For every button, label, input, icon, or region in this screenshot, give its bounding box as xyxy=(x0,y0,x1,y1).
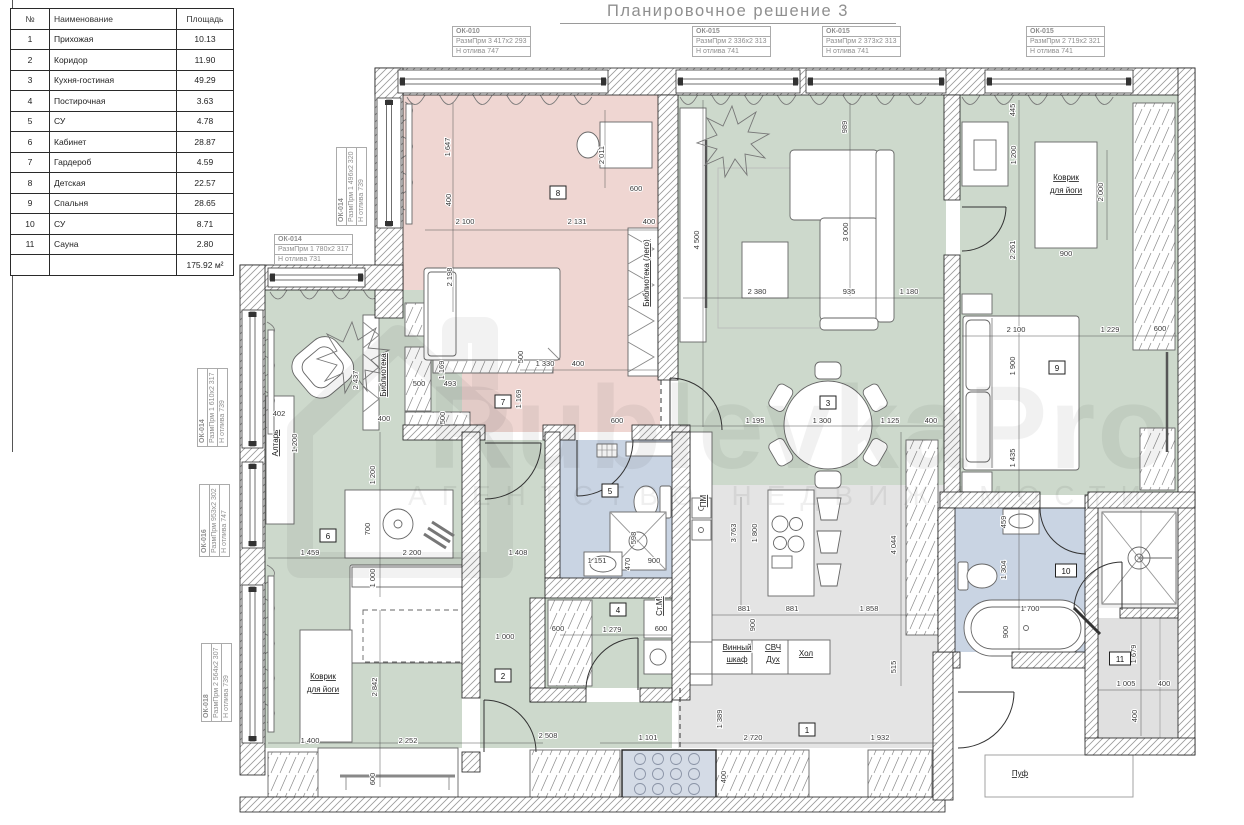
shoe-cabinet xyxy=(622,750,716,798)
window-callout-id: ОК-015 xyxy=(1027,27,1104,37)
wall xyxy=(944,95,960,200)
window-callout-size: РазмПрм 1 496х2 320 xyxy=(347,149,357,226)
dimension-label: 4 044 xyxy=(889,536,898,555)
window-callout-size: РазмПрм 3 417х2 293 xyxy=(453,37,530,47)
plan-label: СВЧ xyxy=(765,643,781,652)
window-glyph xyxy=(806,70,946,93)
window-callout: ОК-014РазмПрм 1 496х2 320Н отлива 739 xyxy=(336,148,367,227)
wall xyxy=(938,508,955,652)
window-callout: ОК-014РазмПрм 1 610х2 317Н отлива 739 xyxy=(197,369,228,448)
dimension-label: 1 101 xyxy=(639,733,658,742)
room-badge-number: 11 xyxy=(1116,655,1125,664)
window-callout-size: РазмПрм 953х2 302 xyxy=(210,485,220,556)
window-callout: ОК-015РазмПрм 2 719х2 321Н отлива 741 xyxy=(1026,26,1105,57)
plan-label: Винный xyxy=(723,643,752,652)
dimension-label: 400 xyxy=(1158,679,1171,688)
dimension-label: 2 200 xyxy=(403,548,422,557)
dimension-label: 1 330 xyxy=(536,359,555,368)
plan-label: для йоги xyxy=(1050,186,1082,195)
plan-label: Коврик xyxy=(310,672,336,681)
room-badge-number: 7 xyxy=(501,398,506,407)
window-glyph xyxy=(676,70,800,93)
dimension-label: 400 xyxy=(378,414,391,423)
dimension-label: 2 100 xyxy=(1007,325,1026,334)
window-callout-drip: Н отлива 741 xyxy=(693,47,770,56)
dimension-label: 400 xyxy=(719,771,728,784)
dimension-label: 459 xyxy=(999,516,1008,529)
dimension-label: 2 261 xyxy=(1008,241,1017,260)
dimension-label: 4 500 xyxy=(692,231,701,250)
room-badge-number: 4 xyxy=(616,606,621,615)
dresser-tv xyxy=(962,122,1008,186)
window-callout-id: ОК-014 xyxy=(275,235,352,245)
dimension-label: 500 xyxy=(413,379,426,388)
dimension-label: 1 300 xyxy=(813,416,832,425)
dimension-label: 881 xyxy=(738,604,751,613)
dimension-label: 989 xyxy=(840,121,849,134)
plan-label: Пуф xyxy=(1012,769,1029,778)
wall xyxy=(640,688,672,702)
wall xyxy=(462,752,480,772)
dimension-label: 400 xyxy=(572,359,585,368)
dimension-label: 1 195 xyxy=(746,416,765,425)
window-callout-drip: Н отлива 747 xyxy=(453,47,530,56)
dimension-label: 400 xyxy=(444,194,453,207)
window-glyph xyxy=(985,70,1133,93)
window-callout-id: ОК-014 xyxy=(337,149,347,226)
dimension-label: 3 000 xyxy=(841,223,850,242)
window-callout-id: ОК-018 xyxy=(202,645,212,722)
window-callout-drip: Н отлива 739 xyxy=(222,645,231,722)
dimension-label: 1 125 xyxy=(881,416,900,425)
window-callout: ОК-010РазмПрм 3 417х2 293Н отлива 747 xyxy=(452,26,531,57)
plan-label: Библиотека (лего) xyxy=(642,239,651,307)
tv-unit-living xyxy=(680,108,706,342)
wall xyxy=(933,652,953,800)
shower-tray xyxy=(1102,512,1176,604)
watermark-subtext: АГЕНТСТВО НЕДВИЖИМОСТИ xyxy=(408,480,1156,511)
room-badge-number: 10 xyxy=(1062,567,1071,576)
dimension-label: 700 xyxy=(363,523,372,536)
wall xyxy=(240,797,945,812)
window-callout-drip: Н отлива 741 xyxy=(823,47,900,56)
dimension-label: 881 xyxy=(786,604,799,613)
dimension-label: 1 180 xyxy=(900,287,919,296)
dimension-label: 1 229 xyxy=(1101,325,1120,334)
dimension-label: 1 000 xyxy=(496,632,515,641)
wall xyxy=(1178,68,1195,755)
dimension-label: 2 380 xyxy=(748,287,767,296)
plan-label: Алтарь xyxy=(271,430,280,457)
window-callout-drip: Н отлива 731 xyxy=(275,255,352,264)
dimension-label: 935 xyxy=(843,287,856,296)
window-glyph xyxy=(242,585,263,743)
room-badge-number: 5 xyxy=(608,487,613,496)
dimension-label: 600 xyxy=(1154,324,1167,333)
dimension-label: 1 005 xyxy=(1117,679,1136,688)
dimension-label: 1 858 xyxy=(860,604,879,613)
window-callout: ОК-018РазмПрм 2 564х2 307Н отлива 739 xyxy=(201,644,232,723)
dimension-label: 1 200 xyxy=(1009,146,1018,165)
wall xyxy=(1085,495,1098,740)
dimension-label: 2 437 xyxy=(351,371,360,390)
dimension-label: 900 xyxy=(748,619,757,632)
window-glyph xyxy=(377,98,401,228)
dimension-label: 1 169 xyxy=(437,361,446,380)
room-badge-number: 6 xyxy=(326,532,331,541)
dimension-label: 515 xyxy=(889,661,898,674)
dimension-label: 400 xyxy=(643,217,656,226)
dimension-label: 400 xyxy=(1130,710,1139,723)
dimension-label: 2 011 xyxy=(597,146,606,164)
dimension-label: 1 400 xyxy=(301,736,320,745)
dimension-label: 500 xyxy=(516,351,525,364)
dimension-label: 1 435 xyxy=(1008,449,1017,468)
dimension-label: 1 932 xyxy=(871,733,890,742)
dimension-label: 2 100 xyxy=(456,217,475,226)
window-callout: ОК-015РазмПрм 2 373х2 313Н отлива 741 xyxy=(822,26,901,57)
window-callout-drip: Н отлива 739 xyxy=(218,370,227,447)
dimension-label: 402 xyxy=(273,409,286,418)
window-glyph xyxy=(242,310,263,448)
dimension-label: 470 xyxy=(623,558,632,571)
dimension-label: 1 304 xyxy=(999,561,1008,580)
window-callout-drip: Н отлива 739 xyxy=(357,149,366,226)
window-callout-id: ОК-015 xyxy=(823,27,900,37)
window-callout: ОК-016РазмПрм 953х2 302Н отлива 747 xyxy=(199,484,230,557)
window-callout: ОК-014РазмПрм 1 780х2 317Н отлива 731 xyxy=(274,234,353,265)
window-callout-id: ОК-015 xyxy=(693,27,770,37)
dimension-label: 1 647 xyxy=(443,138,452,157)
window-callout: ОК-015РазмПрм 2 336х2 313Н отлива 741 xyxy=(692,26,771,57)
watermark-text: RublevkaPro xyxy=(428,362,1171,494)
room-badge-number: 2 xyxy=(501,672,506,681)
window-callout-size: РазмПрм 2 373х2 313 xyxy=(823,37,900,47)
window-callout-drip: Н отлива 747 xyxy=(220,485,229,556)
window-callout-drip: Н отлива 741 xyxy=(1027,47,1104,56)
floor-plan: RublevkaPro АГЕНТСТВО НЕДВИЖИМОСТИ 1 647… xyxy=(0,0,1244,825)
dimension-label: 600 xyxy=(630,184,643,193)
wall xyxy=(530,598,545,702)
window-callout-size: РазмПрм 1 780х2 317 xyxy=(275,245,352,255)
dimension-label: 1 200 xyxy=(290,434,299,453)
dimension-label: 3 763 xyxy=(729,524,738,543)
dimension-label: 598 xyxy=(629,532,638,545)
dimension-label: 2 842 xyxy=(370,678,379,697)
plan-label: Ст.М. xyxy=(655,596,664,616)
console-table xyxy=(318,748,458,798)
dimension-label: 2 720 xyxy=(744,733,763,742)
dimension-label: 2 508 xyxy=(539,731,558,740)
plan-label: ПМ xyxy=(699,494,708,507)
window-callout-size: РазмПрм 2 336х2 313 xyxy=(693,37,770,47)
plan-label: Коврик xyxy=(1053,173,1079,182)
dimension-label: 900 xyxy=(1001,626,1010,639)
window-callout-id: ОК-014 xyxy=(198,370,208,447)
room-badge-number: 8 xyxy=(556,189,561,198)
window-glyph xyxy=(242,462,263,548)
wall xyxy=(530,688,586,702)
dimension-label: 1 459 xyxy=(301,548,320,557)
dimension-label: 500 xyxy=(438,412,447,425)
dimension-label: 493 xyxy=(444,379,457,388)
plan-label: Хол xyxy=(799,649,814,658)
dimension-label: 1 800 xyxy=(750,524,759,543)
wall xyxy=(1085,738,1195,755)
yoga-mat-bedroom xyxy=(1035,142,1097,248)
dimension-label: 1 279 xyxy=(603,625,622,634)
dimension-label: 2 000 xyxy=(1096,183,1105,202)
dimension-label: 1 000 xyxy=(368,569,377,588)
wall xyxy=(658,95,678,380)
dimension-label: 2 252 xyxy=(399,736,418,745)
room-badge-number: 1 xyxy=(805,726,810,735)
window-callout-size: РазмПрм 2 719х2 321 xyxy=(1027,37,1104,47)
window-callout-id: ОК-016 xyxy=(200,485,210,556)
room-badge-number: 9 xyxy=(1055,364,1060,373)
dimension-label: 1 151 xyxy=(588,556,607,565)
dimension-label: 1 389 xyxy=(715,710,724,729)
dimension-label: 600 xyxy=(368,773,377,786)
window-glyph xyxy=(398,70,608,93)
dimension-label: 1 700 xyxy=(1021,604,1040,613)
dimension-label: 1 408 xyxy=(509,548,528,557)
wall xyxy=(545,578,672,598)
dimension-label: 400 xyxy=(925,416,938,425)
dimension-label: 1 900 xyxy=(1008,357,1017,376)
plan-label: Библиотека xyxy=(379,353,388,397)
window-callout-id: ОК-010 xyxy=(453,27,530,37)
window-callout-size: РазмПрм 1 610х2 317 xyxy=(208,370,218,447)
dimension-label: 2 131 xyxy=(568,217,587,226)
window-glyph xyxy=(268,268,365,287)
dimension-label: 1 169 xyxy=(514,390,523,409)
wall xyxy=(1120,608,1178,618)
window-callout-size: РазмПрм 2 564х2 307 xyxy=(212,645,222,722)
dimension-label: 900 xyxy=(648,556,661,565)
plan-label: для йоги xyxy=(307,685,339,694)
dimension-label: 600 xyxy=(655,624,668,633)
dimension-label: 2 198 xyxy=(445,268,454,287)
wall xyxy=(953,652,960,668)
room-badge-number: 3 xyxy=(826,399,831,408)
pouf xyxy=(985,755,1133,797)
plan-label: Дух xyxy=(766,655,780,664)
plan-label: шкаф xyxy=(726,655,748,664)
dimension-label: 900 xyxy=(1060,249,1073,258)
dimension-label: 600 xyxy=(611,416,624,425)
dimension-label: 445 xyxy=(1008,104,1017,117)
dimension-label: 600 xyxy=(552,624,565,633)
dimension-label: 1 200 xyxy=(368,466,377,485)
